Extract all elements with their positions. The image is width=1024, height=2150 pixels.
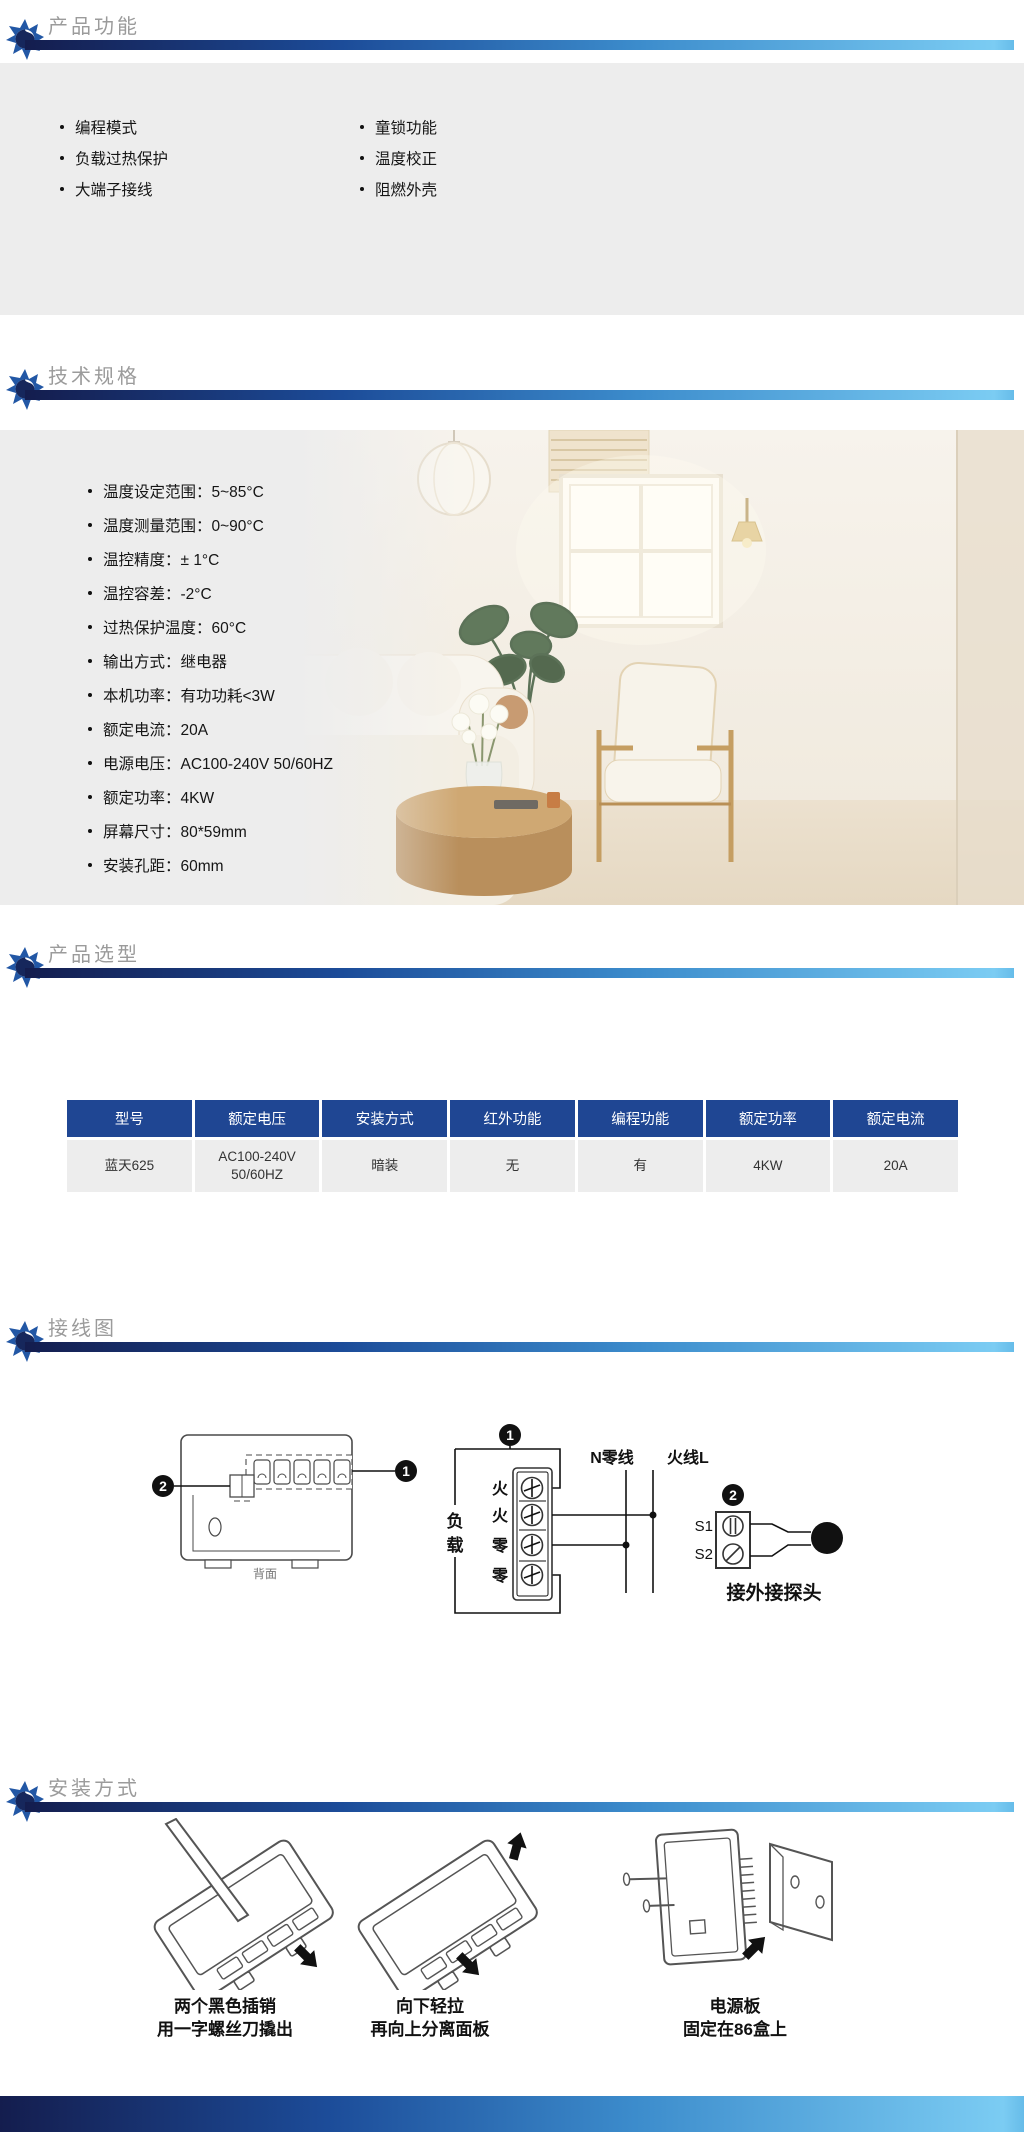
table-cell-model: 蓝天625 — [67, 1140, 192, 1192]
feature-text: 温度校正 — [375, 147, 437, 169]
feature-item: 阻燃外壳 — [360, 173, 437, 204]
load-label: 载 — [447, 1535, 464, 1555]
terminal-label-live1: 火 — [492, 1480, 509, 1498]
section-title: 产品功能 — [48, 10, 140, 39]
svg-text:2: 2 — [729, 1487, 737, 1503]
section-header-selection: 产品选型 — [0, 938, 1024, 1000]
specs-list: 温度设定范围：5~85°C 温度测量范围：0~90°C 温控精度：± 1°C 温… — [88, 474, 333, 882]
bullet-dot-icon — [360, 187, 364, 191]
spec-item: 安装孔距：60mm — [88, 848, 333, 882]
spec-item: 温度设定范围：5~85°C — [88, 474, 333, 508]
table-cell-power: 4KW — [706, 1140, 831, 1192]
bullet-dot-icon — [88, 523, 92, 527]
spec-item: 本机功率：有功功耗<3W — [88, 678, 333, 712]
bullet-dot-icon — [88, 795, 92, 799]
bullet-dot-icon — [60, 187, 64, 191]
neutral-wire-label: N零线 — [590, 1448, 634, 1467]
spec-item: 输出方式：继电器 — [88, 644, 333, 678]
caption-line: 固定在86盒上 — [605, 2018, 865, 2041]
product-spec-page: 产品功能 编程模式 负载过热保护 大端子接线 童锁功能 温度校正 阻燃外壳 技术… — [0, 0, 1024, 2150]
section-divider-bar — [25, 40, 1014, 50]
s1-label: S1 — [695, 1518, 713, 1535]
svg-text:2: 2 — [159, 1478, 167, 1494]
footer-gradient-bar — [0, 2096, 1024, 2132]
install-step3-caption: 电源板 固定在86盒上 — [605, 1995, 865, 2041]
feature-item: 童锁功能 — [360, 111, 437, 142]
install-step3-drawing — [622, 1822, 852, 1984]
selection-table: 型号 额定电压 安装方式 红外功能 编程功能 额定功率 额定电流 蓝天625 A… — [67, 1100, 958, 1192]
section-divider-bar — [25, 968, 1014, 978]
bullet-dot-icon — [88, 727, 92, 731]
table-header-cell: 额定电压 — [195, 1100, 320, 1137]
table-cell-current: 20A — [833, 1140, 958, 1192]
spec-text: 输出方式：继电器 — [103, 650, 227, 672]
photo-corner-wall — [957, 430, 1024, 905]
section-divider-bar — [25, 390, 1014, 400]
bullet-dot-icon — [88, 489, 92, 493]
spec-item: 额定功率：4KW — [88, 780, 333, 814]
feature-item: 温度校正 — [360, 142, 437, 173]
table-header-cell: 额定功率 — [706, 1100, 831, 1137]
spec-item: 过热保护温度：60°C — [88, 610, 333, 644]
terminal-label-neutral2: 零 — [491, 1567, 509, 1585]
spec-item: 温度测量范围：0~90°C — [88, 508, 333, 542]
bullet-dot-icon — [88, 557, 92, 561]
lift-up-arrow-icon — [504, 1830, 531, 1862]
terminal-block-circuit — [455, 1446, 657, 1613]
bullet-dot-icon — [360, 156, 364, 160]
section-header-wiring: 接线图 — [0, 1312, 1024, 1374]
section-title: 接线图 — [48, 1312, 117, 1341]
install-step2-drawing — [352, 1818, 547, 1990]
spec-text: 温度设定范围：5~85°C — [103, 480, 264, 502]
caption-line: 电源板 — [605, 1995, 865, 2018]
bullet-dot-icon — [60, 125, 64, 129]
spec-text: 安装孔距：60mm — [103, 854, 224, 876]
bullet-dot-icon — [60, 156, 64, 160]
probe-sensor-head — [811, 1522, 843, 1554]
feature-text: 大端子接线 — [75, 178, 153, 200]
back-view-caption: 背面 — [253, 1567, 277, 1581]
table-header-cell: 编程功能 — [578, 1100, 703, 1137]
spec-item: 温控容差：-2°C — [88, 576, 333, 610]
wiring-diagram: 2 1 背面 — [100, 1375, 900, 1625]
callout-badge-1-terminal: 1 — [499, 1424, 521, 1446]
external-probe-connector — [716, 1512, 843, 1568]
callout-badge-2-probe: 2 — [722, 1484, 744, 1506]
bullet-dot-icon — [88, 863, 92, 867]
bullet-dot-icon — [88, 693, 92, 697]
feature-item: 编程模式 — [60, 111, 168, 142]
table-cell-mounting: 暗装 — [322, 1140, 447, 1192]
section-title: 产品选型 — [48, 938, 140, 967]
caption-line: 再向上分离面板 — [300, 2018, 560, 2041]
svg-text:1: 1 — [506, 1427, 514, 1443]
spec-text: 过热保护温度：60°C — [103, 616, 246, 638]
feature-text: 童锁功能 — [375, 116, 437, 138]
section-title: 技术规格 — [48, 360, 140, 389]
section-header-specs: 技术规格 — [0, 360, 1024, 422]
specs-block: 温度设定范围：5~85°C 温度测量范围：0~90°C 温控精度：± 1°C 温… — [0, 430, 1024, 905]
feature-text: 编程模式 — [75, 116, 137, 138]
install-step2-caption: 向下轻拉 再向上分离面板 — [300, 1995, 560, 2041]
living-room-photo — [299, 430, 1024, 905]
bullet-dot-icon — [88, 761, 92, 765]
table-cell-voltage: AC100-240V 50/60HZ — [195, 1140, 320, 1192]
spec-text: 额定功率：4KW — [103, 786, 214, 808]
thermostat-back-view — [174, 1435, 395, 1568]
bullet-dot-icon — [88, 659, 92, 663]
table-cell-programming: 有 — [578, 1140, 703, 1192]
spec-text: 本机功率：有功功耗<3W — [103, 684, 275, 706]
features-block: 编程模式 负载过热保护 大端子接线 童锁功能 温度校正 阻燃外壳 — [0, 63, 1024, 315]
terminal-label-neutral1: 零 — [491, 1537, 509, 1555]
section-title: 安装方式 — [48, 1772, 140, 1801]
load-label: 负 — [447, 1511, 464, 1531]
live-wire-label: 火线L — [667, 1448, 709, 1467]
section-divider-bar — [25, 1802, 1014, 1812]
table-header-cell: 红外功能 — [450, 1100, 575, 1137]
spec-text: 温控容差：-2°C — [103, 582, 212, 604]
features-list-right: 童锁功能 温度校正 阻燃外壳 — [360, 111, 437, 204]
bullet-dot-icon — [88, 829, 92, 833]
table-header-cell: 额定电流 — [833, 1100, 958, 1137]
spec-item: 额定电流：20A — [88, 712, 333, 746]
table-cell-infrared: 无 — [450, 1140, 575, 1192]
table-header-cell: 型号 — [67, 1100, 192, 1137]
spec-text: 温控精度：± 1°C — [103, 548, 219, 570]
callout-badge-1: 1 — [395, 1460, 417, 1482]
caption-line: 向下轻拉 — [300, 1995, 560, 2018]
svg-text:1: 1 — [402, 1463, 410, 1479]
feature-item: 大端子接线 — [60, 173, 168, 204]
bullet-dot-icon — [360, 125, 364, 129]
s2-label: S2 — [695, 1546, 713, 1563]
terminal-label-live2: 火 — [492, 1507, 509, 1525]
bullet-dot-icon — [88, 591, 92, 595]
spec-text: 额定电流：20A — [103, 718, 208, 740]
spec-text: 电源电压：AC100-240V 50/60HZ — [103, 752, 333, 774]
spec-text: 屏幕尺寸：80*59mm — [103, 820, 247, 842]
spec-item: 屏幕尺寸：80*59mm — [88, 814, 333, 848]
bullet-dot-icon — [88, 625, 92, 629]
install-step1-drawing — [138, 1818, 353, 1990]
feature-text: 负载过热保护 — [75, 147, 168, 169]
feature-item: 负载过热保护 — [60, 142, 168, 173]
callout-badge-2: 2 — [152, 1475, 174, 1497]
probe-caption: 接外接探头 — [726, 1581, 821, 1604]
spec-text: 温度测量范围：0~90°C — [103, 514, 264, 536]
section-divider-bar — [25, 1342, 1014, 1352]
junction-box — [770, 1844, 832, 1940]
features-list-left: 编程模式 负载过热保护 大端子接线 — [60, 111, 168, 204]
feature-text: 阻燃外壳 — [375, 178, 437, 200]
spec-item: 电源电压：AC100-240V 50/60HZ — [88, 746, 333, 780]
table-header-cell: 安装方式 — [322, 1100, 447, 1137]
spec-item: 温控精度：± 1°C — [88, 542, 333, 576]
